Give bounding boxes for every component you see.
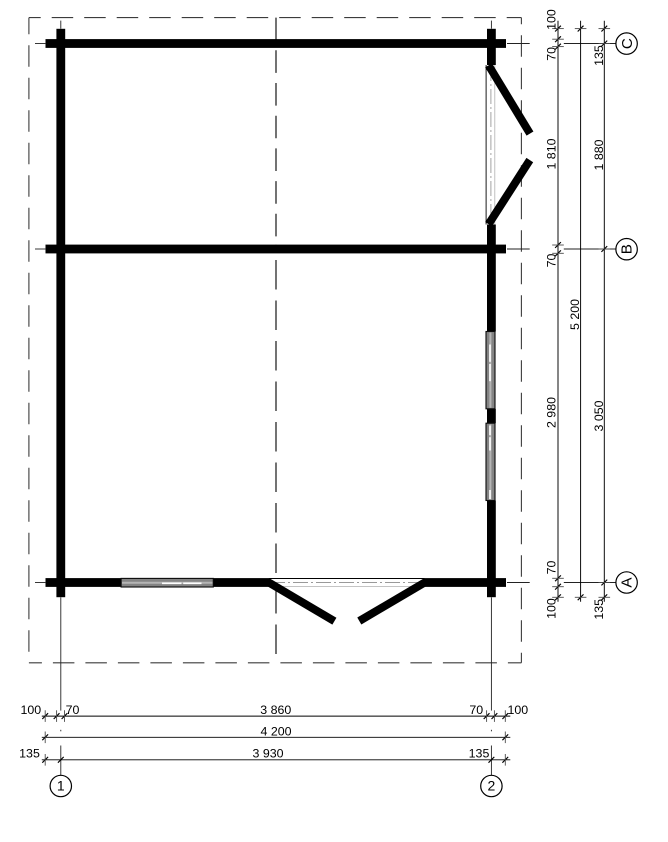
svg-text:135: 135: [592, 599, 606, 620]
svg-text:70: 70: [545, 561, 559, 575]
svg-text:B: B: [619, 244, 636, 254]
svg-text:100: 100: [507, 703, 528, 717]
svg-text:3 930: 3 930: [252, 747, 283, 761]
svg-text:1 810: 1 810: [545, 138, 559, 169]
svg-text:3 050: 3 050: [592, 400, 606, 431]
svg-text:70: 70: [545, 254, 559, 268]
svg-text:2: 2: [488, 778, 496, 794]
svg-text:C: C: [619, 38, 636, 49]
svg-text:2 980: 2 980: [545, 397, 559, 428]
svg-text:3 860: 3 860: [260, 703, 291, 717]
svg-text:100: 100: [545, 598, 559, 619]
svg-text:A: A: [619, 577, 636, 588]
svg-text:100: 100: [20, 703, 41, 717]
svg-text:70: 70: [66, 703, 80, 717]
svg-text:5 200: 5 200: [568, 299, 582, 330]
svg-text:135: 135: [19, 746, 40, 760]
svg-text:135: 135: [592, 45, 606, 66]
svg-text:4 200: 4 200: [260, 725, 291, 739]
svg-text:70: 70: [469, 703, 483, 717]
svg-text:70: 70: [545, 47, 559, 61]
svg-text:135: 135: [469, 746, 490, 760]
svg-text:1: 1: [57, 778, 65, 794]
svg-text:100: 100: [545, 9, 559, 30]
svg-text:1 880: 1 880: [592, 139, 606, 170]
